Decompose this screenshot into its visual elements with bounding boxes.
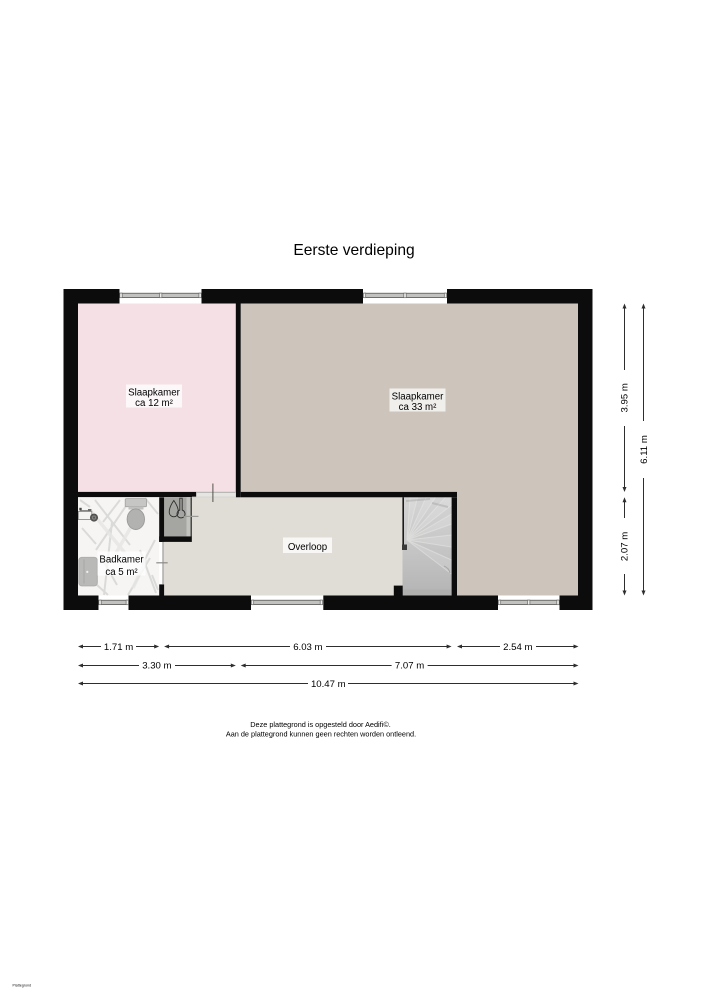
svg-text:ca 12 m²: ca 12 m² [135,398,173,409]
svg-text:Slaapkamer: Slaapkamer [128,388,180,399]
svg-text:Overloop: Overloop [288,542,327,553]
svg-text:Slaapkamer: Slaapkamer [392,392,444,403]
svg-text:3.95 m: 3.95 m [620,383,631,412]
svg-text:6.03 m: 6.03 m [293,642,322,653]
svg-text:10.47 m: 10.47 m [311,679,346,690]
svg-text:Plattegrond: Plattegrond [13,983,32,987]
svg-text:ca 33 m²: ca 33 m² [399,402,437,413]
svg-text:1.71 m: 1.71 m [104,642,133,653]
svg-text:ca 5 m²: ca 5 m² [105,567,138,578]
svg-text:2.07 m: 2.07 m [620,532,631,561]
svg-text:2.54 m: 2.54 m [503,642,532,653]
svg-text:3.30 m: 3.30 m [142,661,171,672]
svg-text:6.11 m: 6.11 m [639,435,650,464]
svg-text:7.07 m: 7.07 m [395,661,424,672]
svg-text:Badkamer: Badkamer [99,555,144,566]
svg-text:Eerste verdieping: Eerste verdieping [293,242,414,259]
svg-text:Deze plattegrond is opgesteld: Deze plattegrond is opgesteld door Aedif… [250,720,390,729]
svg-text:Aan de plattegrond kunnen geen: Aan de plattegrond kunnen geen rechten w… [226,730,416,739]
